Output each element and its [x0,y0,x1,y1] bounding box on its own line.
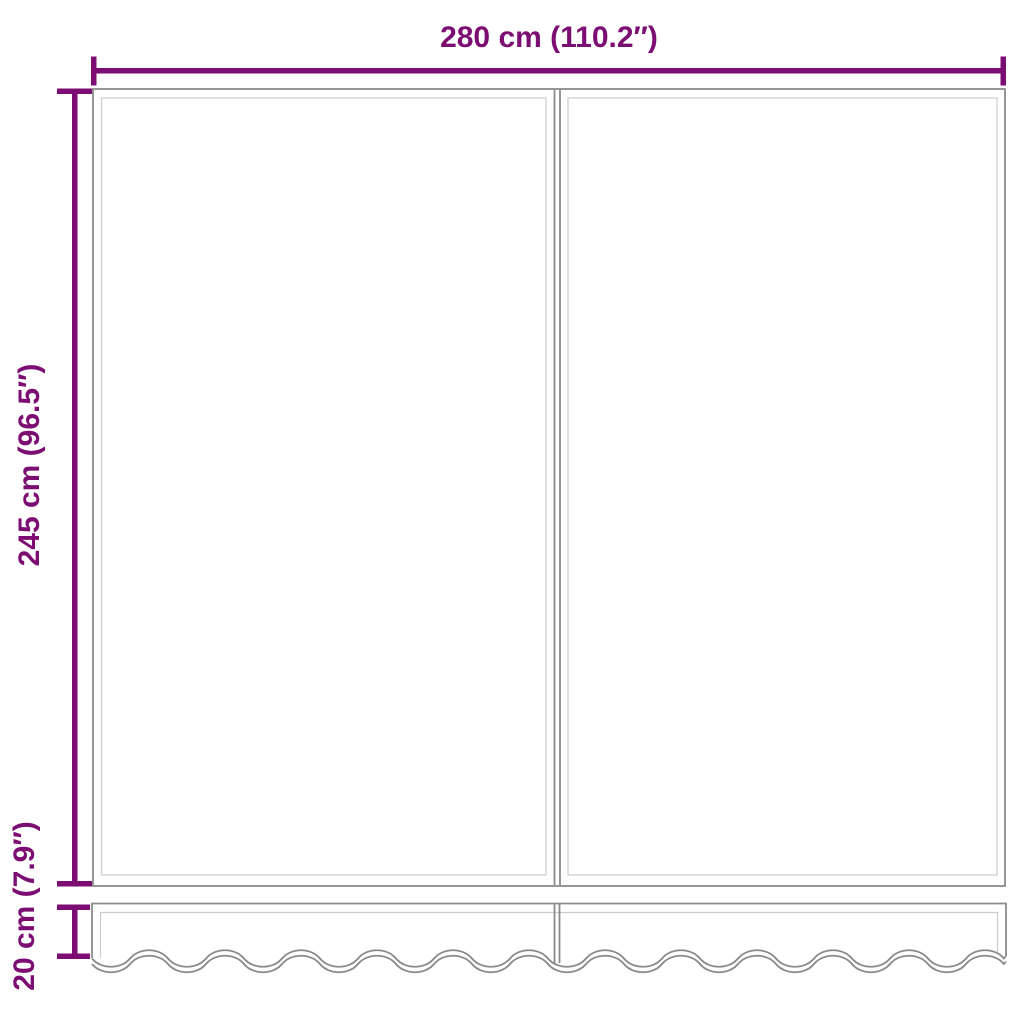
height-dimension-bar [72,89,78,886]
width-dimension-cap-right [1001,57,1007,86]
valance-height-dimension-label: 20 cm (7.9″) [8,821,42,990]
left-panel-inner-seam [102,98,547,875]
width-dimension-label: 280 cm (110.2″) [93,21,1005,55]
height-dimension-label: 245 cm (96.5″) [13,364,47,567]
height-dimension-cap-top [57,89,92,95]
main-fabric-panel-outline [93,89,1005,886]
dimension-lines [57,57,1006,960]
valance-dimension-cap-bottom [57,954,90,960]
width-dimension-cap-left [91,57,97,86]
height-dimension-line [57,89,92,887]
right-panel-inner-seam [568,98,997,875]
valance-scalloped-edge-lower [92,956,1006,973]
height-dimension-cap-bottom [57,881,92,887]
width-dimension-bar [93,68,1003,74]
product-dimension-diagram: 280 cm (110.2″) 245 cm (96.5″) 20 cm (7.… [0,0,1024,1024]
awning-fabric-diagram [0,0,1024,1024]
valance-dimension-cap-top [57,905,90,911]
inner-seam-lines [101,98,998,958]
width-dimension-line [91,57,1006,86]
fabric-outlines [92,89,1006,972]
valance-dimension-bar [72,905,78,958]
valance-height-dimension-line [57,905,90,960]
